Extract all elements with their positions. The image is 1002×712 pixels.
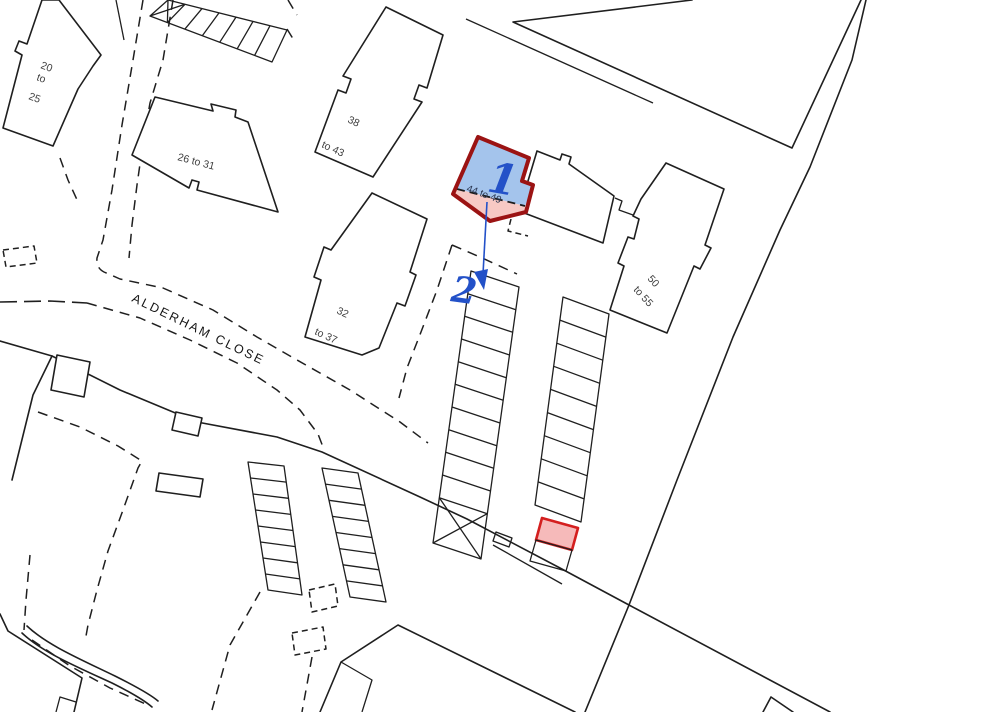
building-50-55 bbox=[610, 163, 724, 333]
boundary-east bbox=[585, 0, 866, 712]
boundary-west bbox=[12, 356, 52, 480]
building-top-right bbox=[513, 0, 861, 148]
building-20-25 bbox=[3, 0, 101, 146]
curtilage-southwest bbox=[38, 412, 142, 636]
building-bottom-center-step bbox=[341, 662, 372, 712]
building-26-31 bbox=[132, 97, 278, 212]
dash-fragment-top2 bbox=[287, 29, 295, 42]
buildings bbox=[0, 0, 861, 712]
dash-fragment-top bbox=[288, 0, 297, 15]
fence-line bbox=[466, 19, 653, 103]
plot-2-number: 2 bbox=[448, 268, 480, 313]
curtilage-west-lower bbox=[24, 555, 30, 630]
path-curve-1 bbox=[22, 633, 152, 707]
path-curve-2 bbox=[27, 626, 158, 701]
dash-footprint-step bbox=[508, 219, 528, 236]
parking-strip-bottom-left bbox=[248, 462, 302, 595]
boundary-lines bbox=[0, 0, 866, 712]
parking-strip-top bbox=[150, 0, 287, 62]
fence-top bbox=[116, 0, 124, 40]
parking-strip-mid-right bbox=[530, 297, 609, 571]
street-name-label: ALDERHAM CLOSE bbox=[130, 291, 267, 368]
parking-strip-mid-left bbox=[433, 271, 519, 559]
parking-strip-bottom-right bbox=[322, 468, 386, 602]
building-connector-step bbox=[615, 198, 633, 215]
garage-3 bbox=[156, 473, 203, 497]
dashed-garage-1 bbox=[309, 584, 338, 612]
dashed-plot-left-edge bbox=[3, 246, 37, 267]
building-bottom-center bbox=[320, 625, 575, 712]
boundary-notch bbox=[493, 532, 512, 547]
dash-bottom-right-of-parking bbox=[212, 592, 260, 710]
site-plan-canvas: 20 to 25 26 to 31 38 to 43 32 to 37 50 t… bbox=[0, 0, 1002, 712]
building-bottom-right-corner bbox=[763, 697, 793, 712]
boundary-longdash bbox=[0, 301, 87, 303]
site-plan: 20 to 25 26 to 31 38 to 43 32 to 37 50 t… bbox=[0, 0, 1002, 712]
building-bottom-left-step bbox=[56, 697, 76, 712]
dashed-garage-2 bbox=[292, 627, 326, 655]
dash-fragment-left bbox=[60, 158, 78, 202]
boundary-south-of-road bbox=[0, 341, 830, 712]
building-44-49-east-wing bbox=[519, 151, 614, 243]
garage-1 bbox=[51, 355, 90, 397]
dash-bottom-center bbox=[302, 657, 312, 712]
garage-2 bbox=[172, 412, 202, 436]
